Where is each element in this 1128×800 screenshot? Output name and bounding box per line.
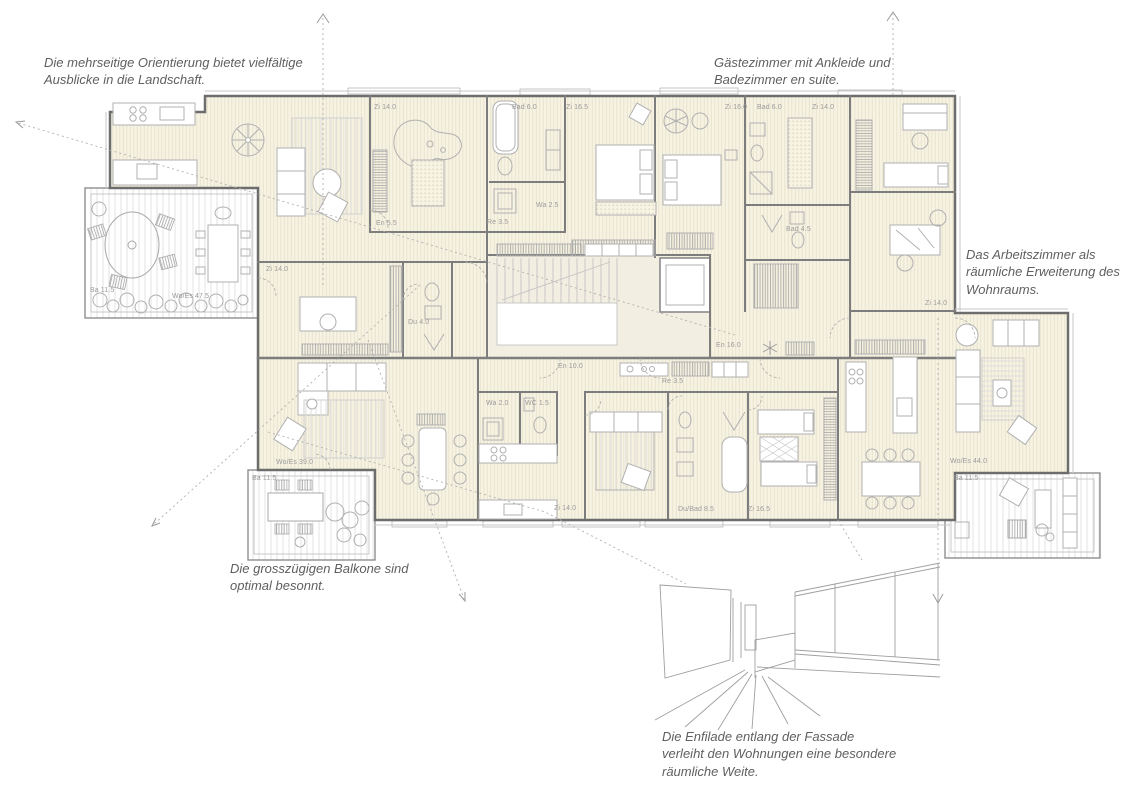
floor-plan-page: Zi 14.0 En 5.5 Ba 11.5 Wo/Es 47.5 Zi 14.… xyxy=(0,0,1128,800)
room-label: Ba 11.5 xyxy=(954,475,978,482)
room-label: Zi 14.0 xyxy=(374,104,396,111)
room-label: En 10.0 xyxy=(558,363,583,370)
room-label: WC 1.5 xyxy=(525,400,549,407)
room-label: Ba 11.5 xyxy=(252,475,276,482)
room-label: Bad 4.5 xyxy=(786,226,811,233)
room-label: Bad 6.0 xyxy=(757,104,782,111)
annotation-guest-room: Gästezimmer mit Ankleide und Badezimmer … xyxy=(714,54,914,89)
room-label: Wo/Es 44.0 xyxy=(950,458,987,465)
room-label: Wo/Es 39.0 xyxy=(276,459,313,466)
elevator xyxy=(660,258,710,312)
room-label: Du 4.0 xyxy=(408,319,429,326)
enfilade-sketch xyxy=(655,563,940,730)
room-label: Zi 16.0 xyxy=(725,104,747,111)
room-label: Zi 14.0 xyxy=(266,266,288,273)
room-label: En 16.0 xyxy=(716,342,741,349)
floor-plan-drawing xyxy=(0,0,1128,800)
stair-landing xyxy=(497,303,617,345)
room-label: Ba 11.5 xyxy=(90,287,114,294)
stair-core xyxy=(489,257,710,356)
room-label: Du/Bad 8.5 xyxy=(678,506,714,513)
annotation-enfilade: Die Enfilade entlang der Fassade verleih… xyxy=(662,728,897,780)
room-label: Zi 14.0 xyxy=(554,505,576,512)
room-label: Zi 16.5 xyxy=(566,104,588,111)
room-label: Wa 2.5 xyxy=(536,202,559,209)
room-label: Zi 16.5 xyxy=(748,506,770,513)
room-label: Zi 14.0 xyxy=(925,300,947,307)
room-label: Zi 14.0 xyxy=(812,104,834,111)
room-label: Wa 2.0 xyxy=(486,400,509,407)
annotation-study: Das Arbeitszimmer als räumliche Erweiter… xyxy=(966,246,1126,298)
annotation-orientation: Die mehrseitige Orientierung bietet viel… xyxy=(44,54,324,89)
annotation-balconies: Die grosszügigen Balkone sind optimal be… xyxy=(230,560,440,595)
room-label: En 5.5 xyxy=(376,220,397,227)
room-label: Re 3.5 xyxy=(662,378,683,385)
room-label: Wo/Es 47.5 xyxy=(172,293,209,300)
room-label: Re 3.5 xyxy=(487,219,508,226)
room-label: Bad 6.0 xyxy=(512,104,537,111)
